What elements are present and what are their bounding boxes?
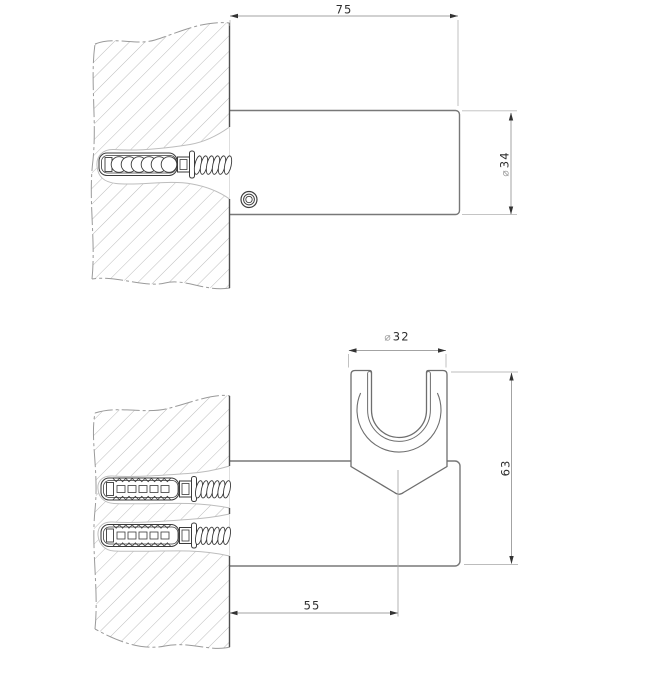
dimension-value: 75 [336,2,353,16]
dimension-value: 32 [393,329,410,343]
dimension-75 [230,14,458,106]
holder-clamp [351,371,447,495]
diameter-symbol: ⌀ [499,169,511,176]
dimension-label-front-height: 63 [500,460,512,477]
diameter-symbol: ⌀ [384,331,391,343]
dimension-label-body-diameter: ⌀34 [499,151,511,176]
dimension-label-holder-diameter: ⌀32 [384,331,409,343]
dimension-value: 34 [497,151,511,168]
drawing-linework [0,0,658,679]
dimension-label-front-depth: 55 [304,600,321,612]
dimension-dia32 [349,348,447,367]
clamp-liner-tip [368,372,431,374]
bracket-body-side [230,111,460,215]
clamp-silhouette [351,371,447,495]
side-view [91,14,517,289]
technical-drawing-canvas: 75 ⌀34 ⌀32 63 55 [0,0,658,679]
dimension-value: 63 [498,460,512,477]
dimension-value: 55 [304,598,321,612]
set-screw [241,192,257,208]
dimension-label-body-length: 75 [336,4,353,16]
